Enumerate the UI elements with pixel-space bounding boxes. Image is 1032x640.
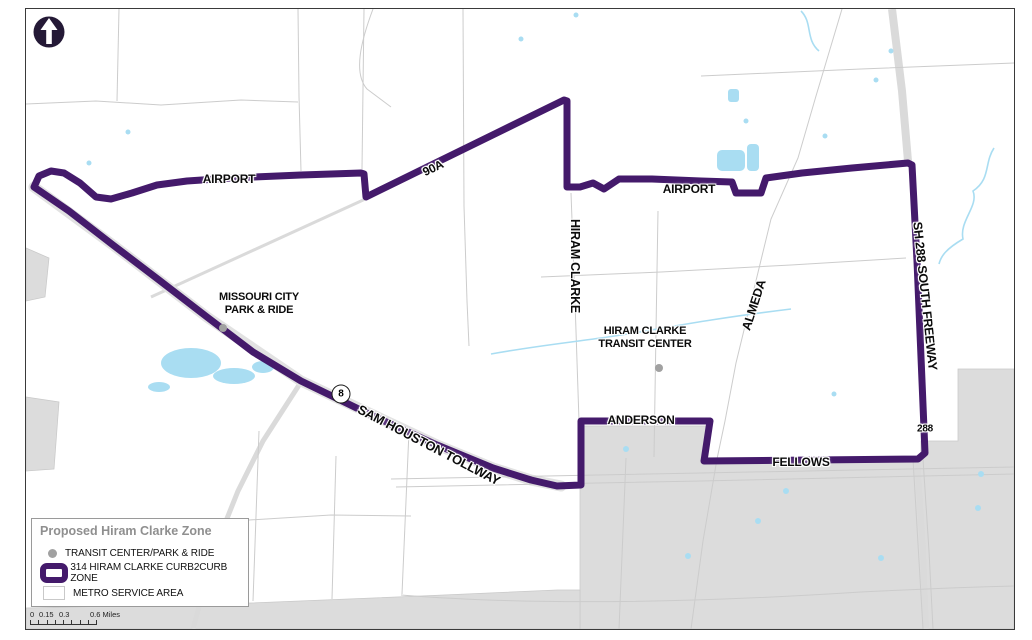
legend-item-transit-center: TRANSIT CENTER/PARK & RIDE bbox=[40, 543, 240, 563]
beltway-8-shield-icon: 8 bbox=[332, 385, 351, 404]
road-label-airport-east: AIRPORT bbox=[663, 182, 716, 196]
scale-bar: 0 0.15 0.3 0.6 Miles bbox=[30, 610, 160, 630]
legend-item-metro-service-area: METRO SERVICE AREA bbox=[40, 583, 240, 603]
service-area-swatch bbox=[43, 586, 65, 600]
map-canvas: AIRPORT 90A AIRPORT HIRAM CLARKE ALMEDA … bbox=[25, 8, 1015, 630]
poi-label-hiram-clarke-transit-center: HIRAM CLARKE TRANSIT CENTER bbox=[598, 325, 691, 351]
scale-bar-ruler bbox=[30, 620, 97, 625]
ref-label-288: 288 bbox=[917, 424, 933, 435]
legend-item-label: TRANSIT CENTER/PARK & RIDE bbox=[65, 548, 214, 559]
legend-item-label: 314 HIRAM CLARKE CURB2CURB ZONE bbox=[70, 562, 240, 584]
park-and-ride-dot bbox=[219, 324, 227, 332]
legend-box: Proposed Hiram Clarke Zone TRANSIT CENTE… bbox=[31, 518, 249, 607]
legend-title: Proposed Hiram Clarke Zone bbox=[40, 524, 240, 538]
scale-tick-label: 0.15 bbox=[39, 610, 54, 619]
scale-tick-label: 0 bbox=[30, 610, 34, 619]
road-label-anderson: ANDERSON bbox=[607, 413, 674, 427]
poi-label-line2: TRANSIT CENTER bbox=[598, 338, 691, 351]
poi-label-line2: PARK & RIDE bbox=[219, 304, 299, 317]
road-label-fellows: FELLOWS bbox=[772, 455, 829, 469]
north-arrow-icon bbox=[31, 14, 67, 50]
road-label-hiram-clarke: HIRAM CLARKE bbox=[568, 219, 582, 313]
transit-center-dot-swatch bbox=[48, 549, 57, 558]
road-label-airport-west: AIRPORT bbox=[203, 172, 256, 186]
scale-tick-label: 0.6 Miles bbox=[90, 610, 120, 619]
legend-item-curb2curb-zone: 314 HIRAM CLARKE CURB2CURB ZONE bbox=[40, 563, 240, 583]
poi-label-line1: MISSOURI CITY bbox=[219, 291, 299, 304]
poi-label-missouri-city-park-ride: MISSOURI CITY PARK & RIDE bbox=[219, 291, 299, 317]
zone-boundary-swatch bbox=[40, 563, 68, 583]
scale-tick-label: 0.3 bbox=[59, 610, 69, 619]
legend-item-label: METRO SERVICE AREA bbox=[73, 588, 183, 599]
poi-label-line1: HIRAM CLARKE bbox=[598, 325, 691, 338]
transit-center-dot bbox=[655, 364, 663, 372]
